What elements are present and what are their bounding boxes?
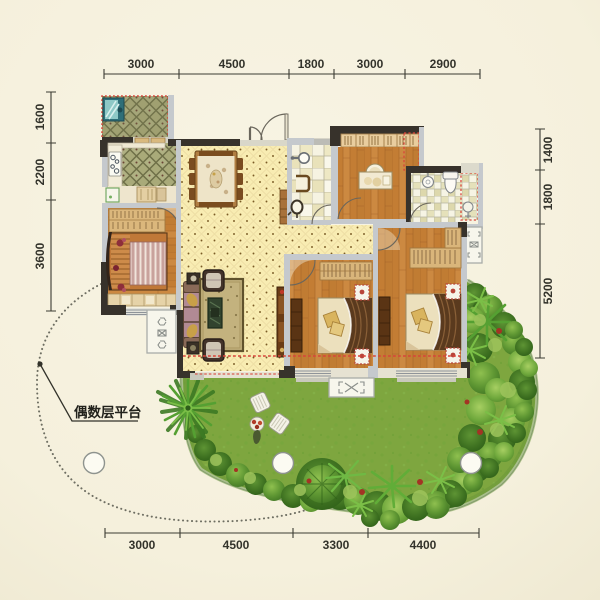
svg-text:4500: 4500 bbox=[219, 57, 246, 71]
svg-text:3000: 3000 bbox=[357, 57, 384, 71]
svg-text:3600: 3600 bbox=[33, 242, 47, 269]
svg-text:3000: 3000 bbox=[129, 538, 156, 552]
svg-text:3300: 3300 bbox=[323, 538, 350, 552]
svg-text:1800: 1800 bbox=[298, 57, 325, 71]
svg-text:1600: 1600 bbox=[33, 103, 47, 130]
svg-text:5200: 5200 bbox=[541, 277, 555, 304]
svg-text:2900: 2900 bbox=[430, 57, 457, 71]
svg-text:2200: 2200 bbox=[33, 158, 47, 185]
svg-text:偶数层平台: 偶数层平台 bbox=[74, 404, 142, 420]
svg-text:1800: 1800 bbox=[541, 183, 555, 210]
svg-text:4500: 4500 bbox=[223, 538, 250, 552]
svg-text:1400: 1400 bbox=[541, 136, 555, 163]
svg-text:3000: 3000 bbox=[128, 57, 155, 71]
svg-text:4400: 4400 bbox=[410, 538, 437, 552]
